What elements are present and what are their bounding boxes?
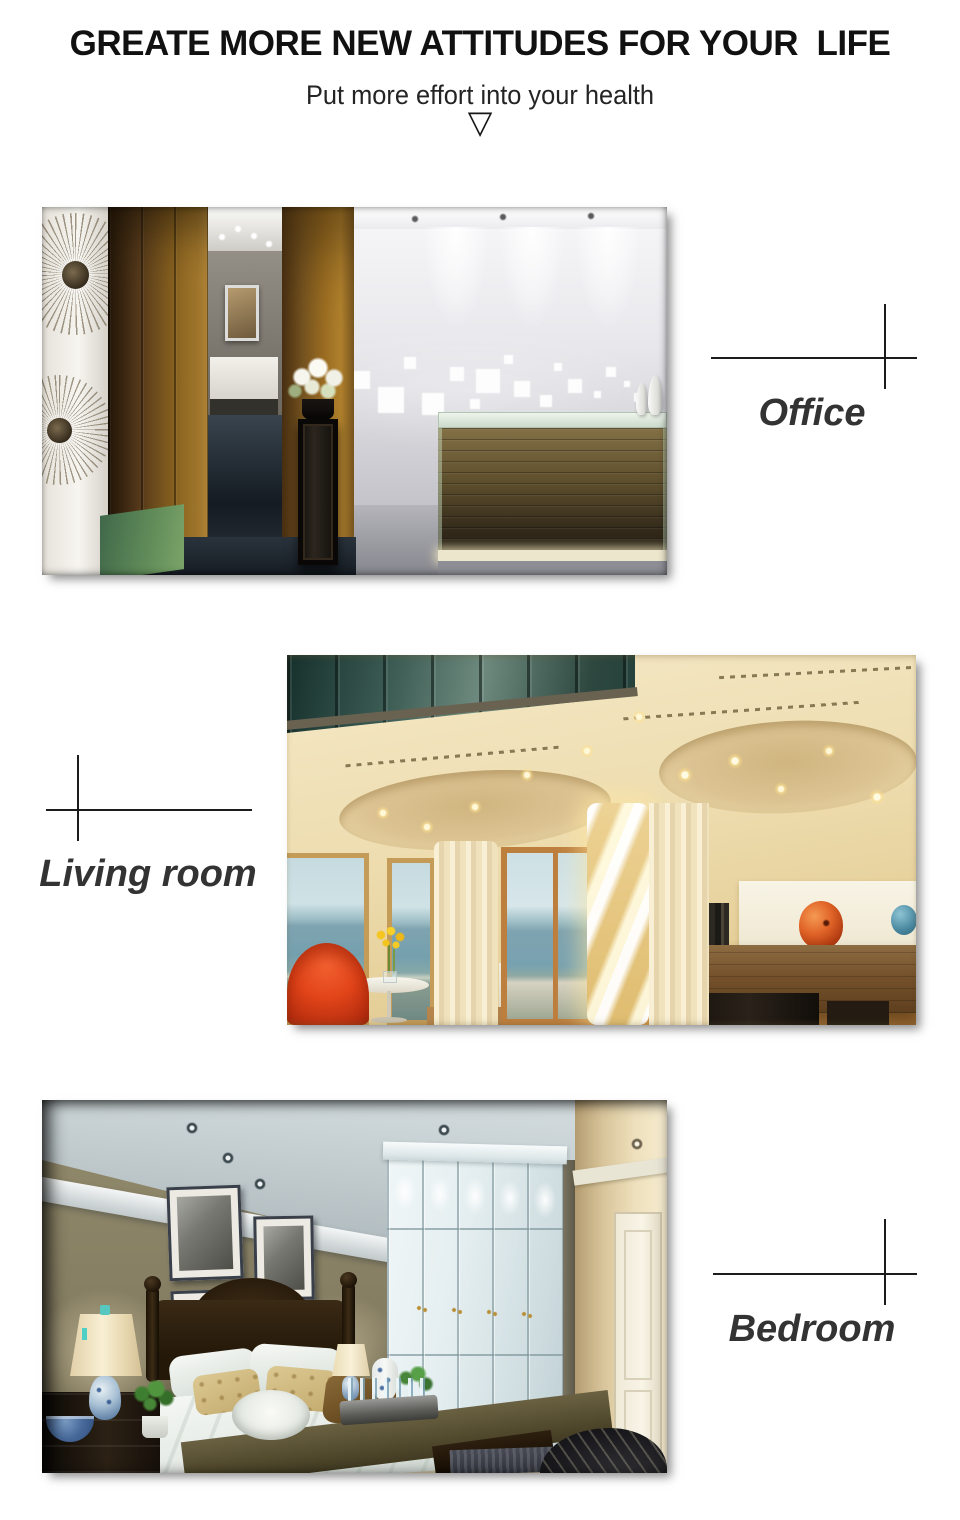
bedroom-photo xyxy=(42,1100,667,1473)
bedroom-label: Bedroom xyxy=(700,1308,924,1351)
office-photo xyxy=(42,207,667,575)
living-room-label: Living room xyxy=(8,853,288,896)
photo-vignette xyxy=(42,1100,667,1473)
living-room-crosshair-vertical-line xyxy=(77,755,79,841)
office-crosshair-vertical-line xyxy=(884,304,886,389)
living-room-crosshair-horizontal-line xyxy=(46,809,252,811)
bedroom-crosshair-vertical-line xyxy=(884,1219,886,1305)
office-crosshair-horizontal-line xyxy=(711,357,917,359)
photo-vignette xyxy=(42,207,667,575)
photo-vignette xyxy=(287,655,916,1025)
down-triangle-icon: ▽ xyxy=(0,106,960,138)
banner-title: GREATE MORE NEW ATTITUDES FOR YOUR LIFE xyxy=(0,24,960,64)
bedroom-crosshair-horizontal-line xyxy=(713,1273,917,1275)
office-label: Office xyxy=(706,392,918,435)
living-room-photo xyxy=(287,655,916,1025)
